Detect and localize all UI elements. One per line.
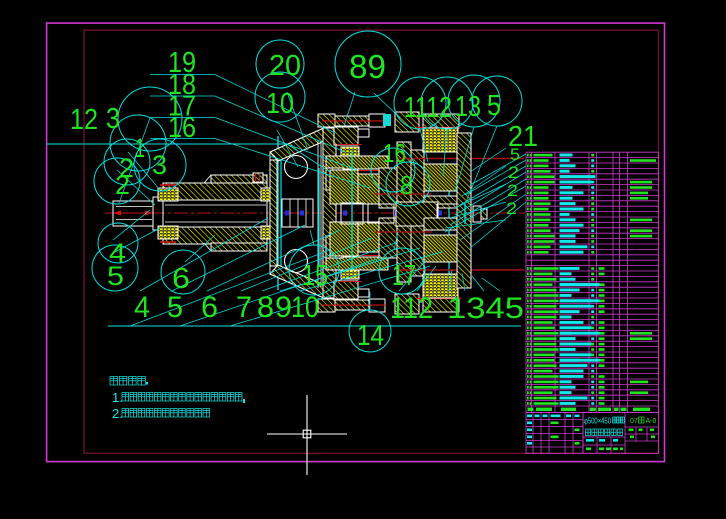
- svg-text:5: 5: [107, 261, 124, 291]
- svg-text:13: 13: [455, 91, 481, 123]
- svg-text:8: 8: [400, 170, 413, 200]
- svg-text:07: 07: [630, 418, 638, 425]
- svg-text:3: 3: [152, 150, 167, 180]
- svg-text:7: 7: [236, 291, 252, 324]
- svg-text:15: 15: [302, 260, 328, 292]
- svg-text:2: 2: [506, 199, 517, 218]
- svg-text:9: 9: [275, 291, 292, 324]
- svg-text:4: 4: [134, 291, 150, 324]
- svg-text:112: 112: [390, 292, 433, 325]
- svg-text:2: 2: [507, 181, 518, 200]
- svg-text:8: 8: [257, 291, 274, 324]
- svg-text:12: 12: [70, 104, 98, 136]
- svg-text:6: 6: [201, 291, 218, 324]
- svg-text:89: 89: [349, 48, 386, 85]
- svg-text:2: 2: [508, 163, 519, 182]
- svg-text:17: 17: [392, 260, 416, 292]
- svg-text:20: 20: [269, 50, 301, 82]
- svg-text:5: 5: [167, 291, 183, 324]
- svg-text:3: 3: [106, 103, 120, 135]
- svg-text:2.: 2.: [112, 406, 123, 421]
- svg-text:1: 1: [135, 133, 145, 163]
- svg-text:φ500×450: φ500×450: [584, 417, 611, 426]
- svg-text:1345: 1345: [447, 292, 524, 325]
- svg-text:A-0: A-0: [646, 418, 657, 425]
- svg-text:10: 10: [291, 291, 319, 324]
- svg-text:16: 16: [383, 138, 406, 168]
- svg-text:5: 5: [510, 145, 520, 164]
- svg-text:5: 5: [487, 90, 501, 122]
- svg-text:16: 16: [168, 112, 196, 144]
- svg-text:1.: 1.: [112, 390, 123, 405]
- svg-text:2: 2: [115, 170, 130, 200]
- svg-text:1112: 1112: [404, 92, 452, 124]
- svg-text:10: 10: [266, 88, 294, 120]
- svg-text:14: 14: [357, 320, 384, 352]
